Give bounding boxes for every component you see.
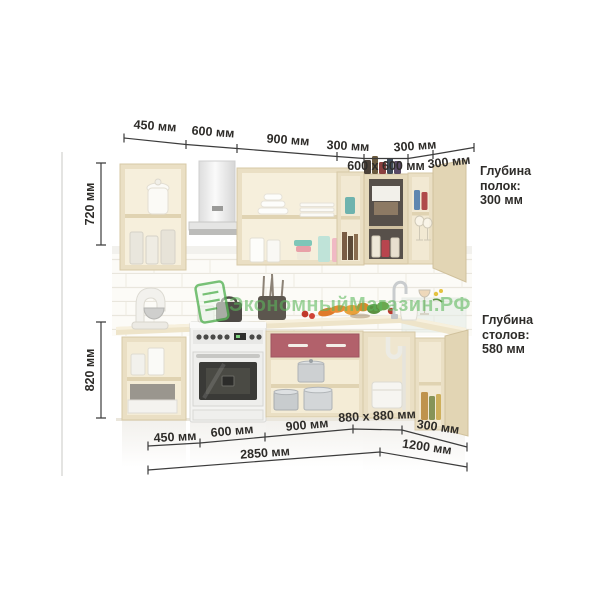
note-shelf-depth: Глубина полок: 300 мм (480, 164, 531, 208)
dim-top-900: 900 мм (266, 132, 310, 149)
dim-top-450: 450 мм (133, 118, 177, 135)
note-table-depth-line1: Глубина (482, 313, 533, 328)
right-side-panel-lower (445, 330, 468, 436)
base-cabinet-900-red-drawer (266, 331, 363, 417)
note-table-depth-line3: 580 мм (482, 342, 533, 357)
stove (190, 322, 266, 422)
note-shelf-depth-line1: Глубина (480, 164, 531, 179)
dim-top-600: 600 мм (191, 124, 235, 141)
dim-top-600x600: 600 x 600 мм (347, 159, 425, 173)
dim-top-300a: 300 мм (326, 138, 370, 154)
dim-top-300b: 300 мм (393, 138, 437, 155)
watermark-logo-icon (195, 281, 229, 323)
note-shelf-depth-line2: полок: (480, 179, 531, 194)
watermark-text: ЭкономныйМагазин.РФ (229, 294, 471, 317)
dim-bottom-450: 450 мм (153, 429, 197, 445)
base-cabinet-450 (122, 337, 186, 420)
corner-wall-cabinet-600x600 (364, 174, 408, 264)
wall-cabinet-900 (237, 168, 349, 265)
note-table-depth: Глубина столов: 580 мм (482, 313, 533, 357)
wall-cabinet-300 (337, 172, 364, 265)
note-table-depth-line2: столов: (482, 328, 533, 343)
base-cabinet-300-right (415, 338, 445, 430)
dim-left-720: 720 мм (83, 183, 97, 226)
right-side-panel-upper (433, 160, 466, 282)
wall-cabinet-300-right (408, 173, 433, 264)
dim-left-820: 820 мм (83, 349, 97, 392)
kitchen-product-image: ЭкономныйМагазин.РФ 450 мм 600 мм 900 мм… (0, 0, 600, 600)
corner-base-cabinet-880x880 (363, 332, 415, 418)
wall-cabinet-450 (120, 164, 186, 270)
note-shelf-depth-line3: 300 мм (480, 193, 531, 208)
